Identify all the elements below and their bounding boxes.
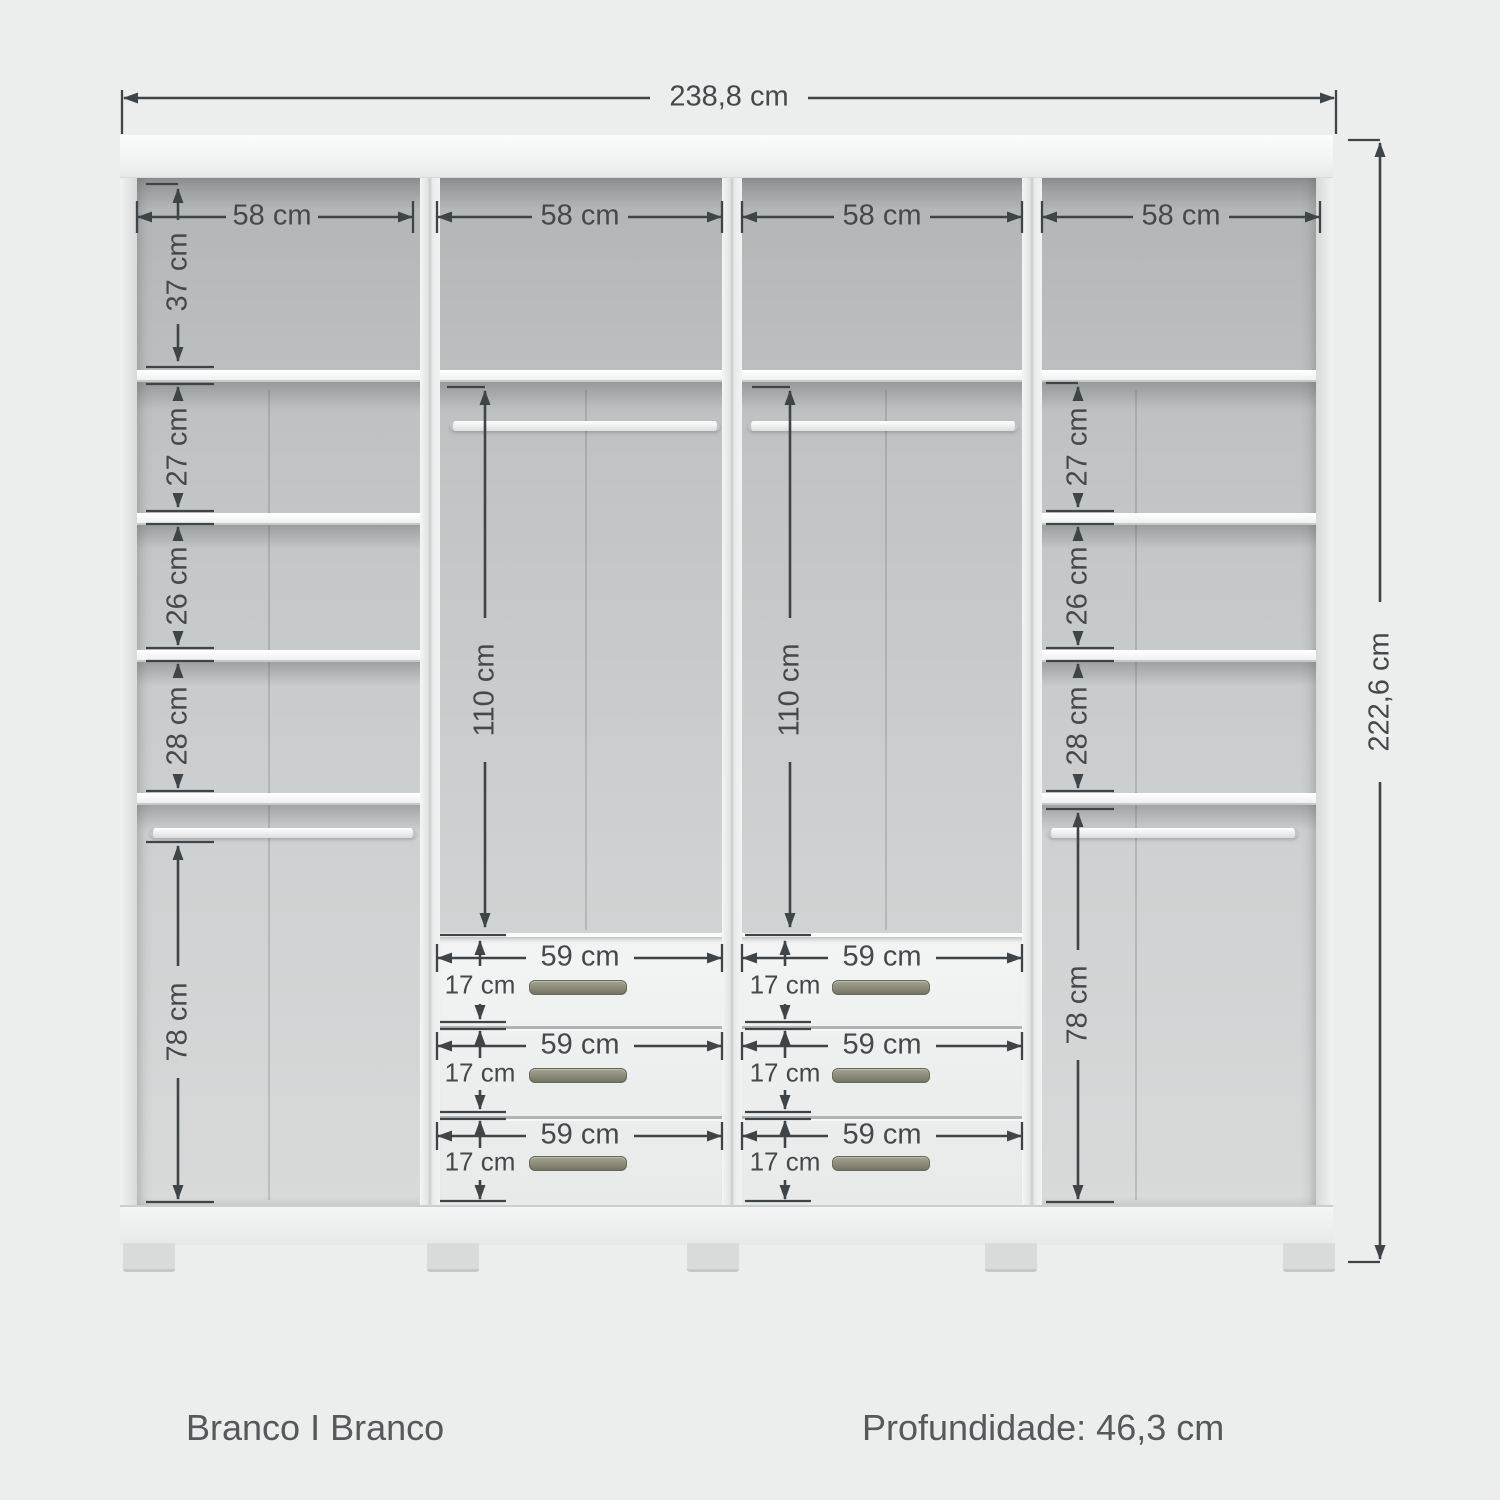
right-hanging-rod [1048,828,1298,838]
dim-label-left-78: 78 cm [162,983,195,1062]
dim-label-drawer3-height-right: 17 cm [750,1147,821,1178]
dim-label-left-26: 26 cm [162,547,195,626]
wardrobe-foot [427,1243,479,1272]
dim-label-drawer3-width-right: 59 cm [843,1119,922,1152]
dim-label-col2-width: 58 cm [541,200,620,233]
left-shelf-4 [137,793,420,805]
right-shelf-4 [1042,793,1316,805]
drawer-handle [529,1156,627,1171]
drawer-handle [529,980,627,995]
dim-label-col1-width: 58 cm [233,200,312,233]
left-shelf-3 [137,650,420,662]
wardrobe-foot [1283,1243,1335,1272]
back-seam-center-left-column [585,390,587,930]
dim-label-col3-width: 58 cm [843,200,922,233]
shadow-under-shelf-d-left [137,803,420,831]
dim-label-drawer3-width-left: 59 cm [541,1119,620,1152]
dim-label-drawer3-height-left: 17 cm [445,1147,516,1178]
dim-label-left-37: 37 cm [162,233,195,312]
dim-label-drawer2-height-left: 17 cm [445,1058,516,1089]
dim-label-right-78: 78 cm [1062,966,1095,1045]
dim-label-hang-right-110: 110 cm [774,644,807,737]
wardrobe-foot [123,1243,175,1272]
dim-label-col4-width: 58 cm [1142,200,1221,233]
vertical-divider-2 [722,177,742,1205]
drawer-handle [529,1068,627,1083]
dim-label-drawer2-height-right: 17 cm [750,1058,821,1089]
dim-label-hang-left-110: 110 cm [469,644,502,737]
vertical-divider-1 [420,177,440,1205]
dim-label-overall-height: 222,6 cm [1364,632,1397,751]
drawer-handle [832,1156,930,1171]
dim-label-drawer1-width-left: 59 cm [541,941,620,974]
drawer-handle [832,1068,930,1083]
wardrobe-base-panel [120,1205,1333,1245]
wardrobe-dimension-diagram: 238,8 cm 58 cm 58 cm 58 cm 58 cm 37 cm 2… [0,0,1500,1500]
wardrobe-foot [687,1243,739,1272]
left-hanging-rod [150,828,416,838]
shadow-under-shelf-b-left [137,523,420,549]
left-side-wall [120,177,137,1205]
vertical-divider-3 [1022,177,1042,1205]
dim-label-right-26: 26 cm [1062,547,1095,626]
right-shelf-3 [1042,650,1316,662]
depth-label: Profundidade: 46,3 cm [862,1407,1224,1449]
shadow-under-shelf-c-right [1042,660,1316,686]
dim-label-right-28: 28 cm [1062,687,1095,766]
shadow-under-shelf-b-right [1042,523,1316,549]
dim-label-drawer1-height-left: 17 cm [445,970,516,1001]
dim-label-drawer2-width-right: 59 cm [843,1029,922,1062]
wardrobe-foot [985,1243,1037,1272]
dim-label-right-27: 27 cm [1062,408,1095,487]
right-side-wall [1316,177,1333,1205]
drawer-handle [832,980,930,995]
dim-label-drawer1-height-right: 17 cm [750,970,821,1001]
center-right-hanging-rod [748,421,1018,431]
shadow-under-shelf-d-right [1042,803,1316,831]
dim-label-drawer2-width-left: 59 cm [541,1029,620,1062]
left-shelf-2 [137,513,420,525]
right-shelf-2 [1042,513,1316,525]
wardrobe-top-panel [120,135,1333,178]
dim-label-left-27: 27 cm [162,408,195,487]
dim-label-left-28: 28 cm [162,687,195,766]
center-left-hanging-rod [450,421,720,431]
dim-label-drawer1-width-right: 59 cm [843,941,922,974]
shadow-under-shelf-c-left [137,660,420,686]
back-seam-center-right-column [885,390,887,930]
finish-label: Branco I Branco [186,1407,444,1449]
dim-label-overall-width: 238,8 cm [669,81,788,114]
